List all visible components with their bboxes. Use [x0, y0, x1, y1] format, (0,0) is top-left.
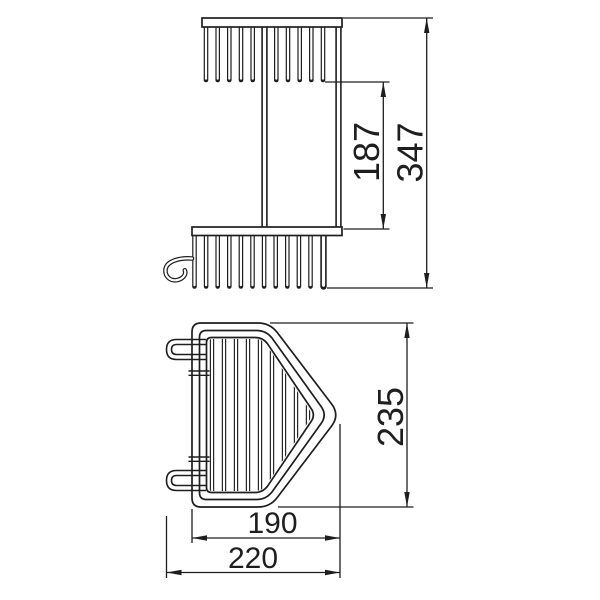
- drawing-canvas: 187 347 235 190 220: [0, 0, 600, 600]
- technical-drawing: 187 347 235 190 220: [0, 0, 600, 600]
- dim-label-overall-width: 220: [228, 542, 278, 575]
- side-view-linework: [165, 18, 342, 287]
- dim-label-tier-spacing: 187: [346, 122, 387, 182]
- dim-label-overall-height: 347: [390, 122, 431, 182]
- dim-label-basket-width: 190: [247, 507, 297, 540]
- dimension-linework: [167, 18, 434, 578]
- top-view-linework: [167, 323, 336, 507]
- dim-label-depth: 235: [370, 387, 411, 447]
